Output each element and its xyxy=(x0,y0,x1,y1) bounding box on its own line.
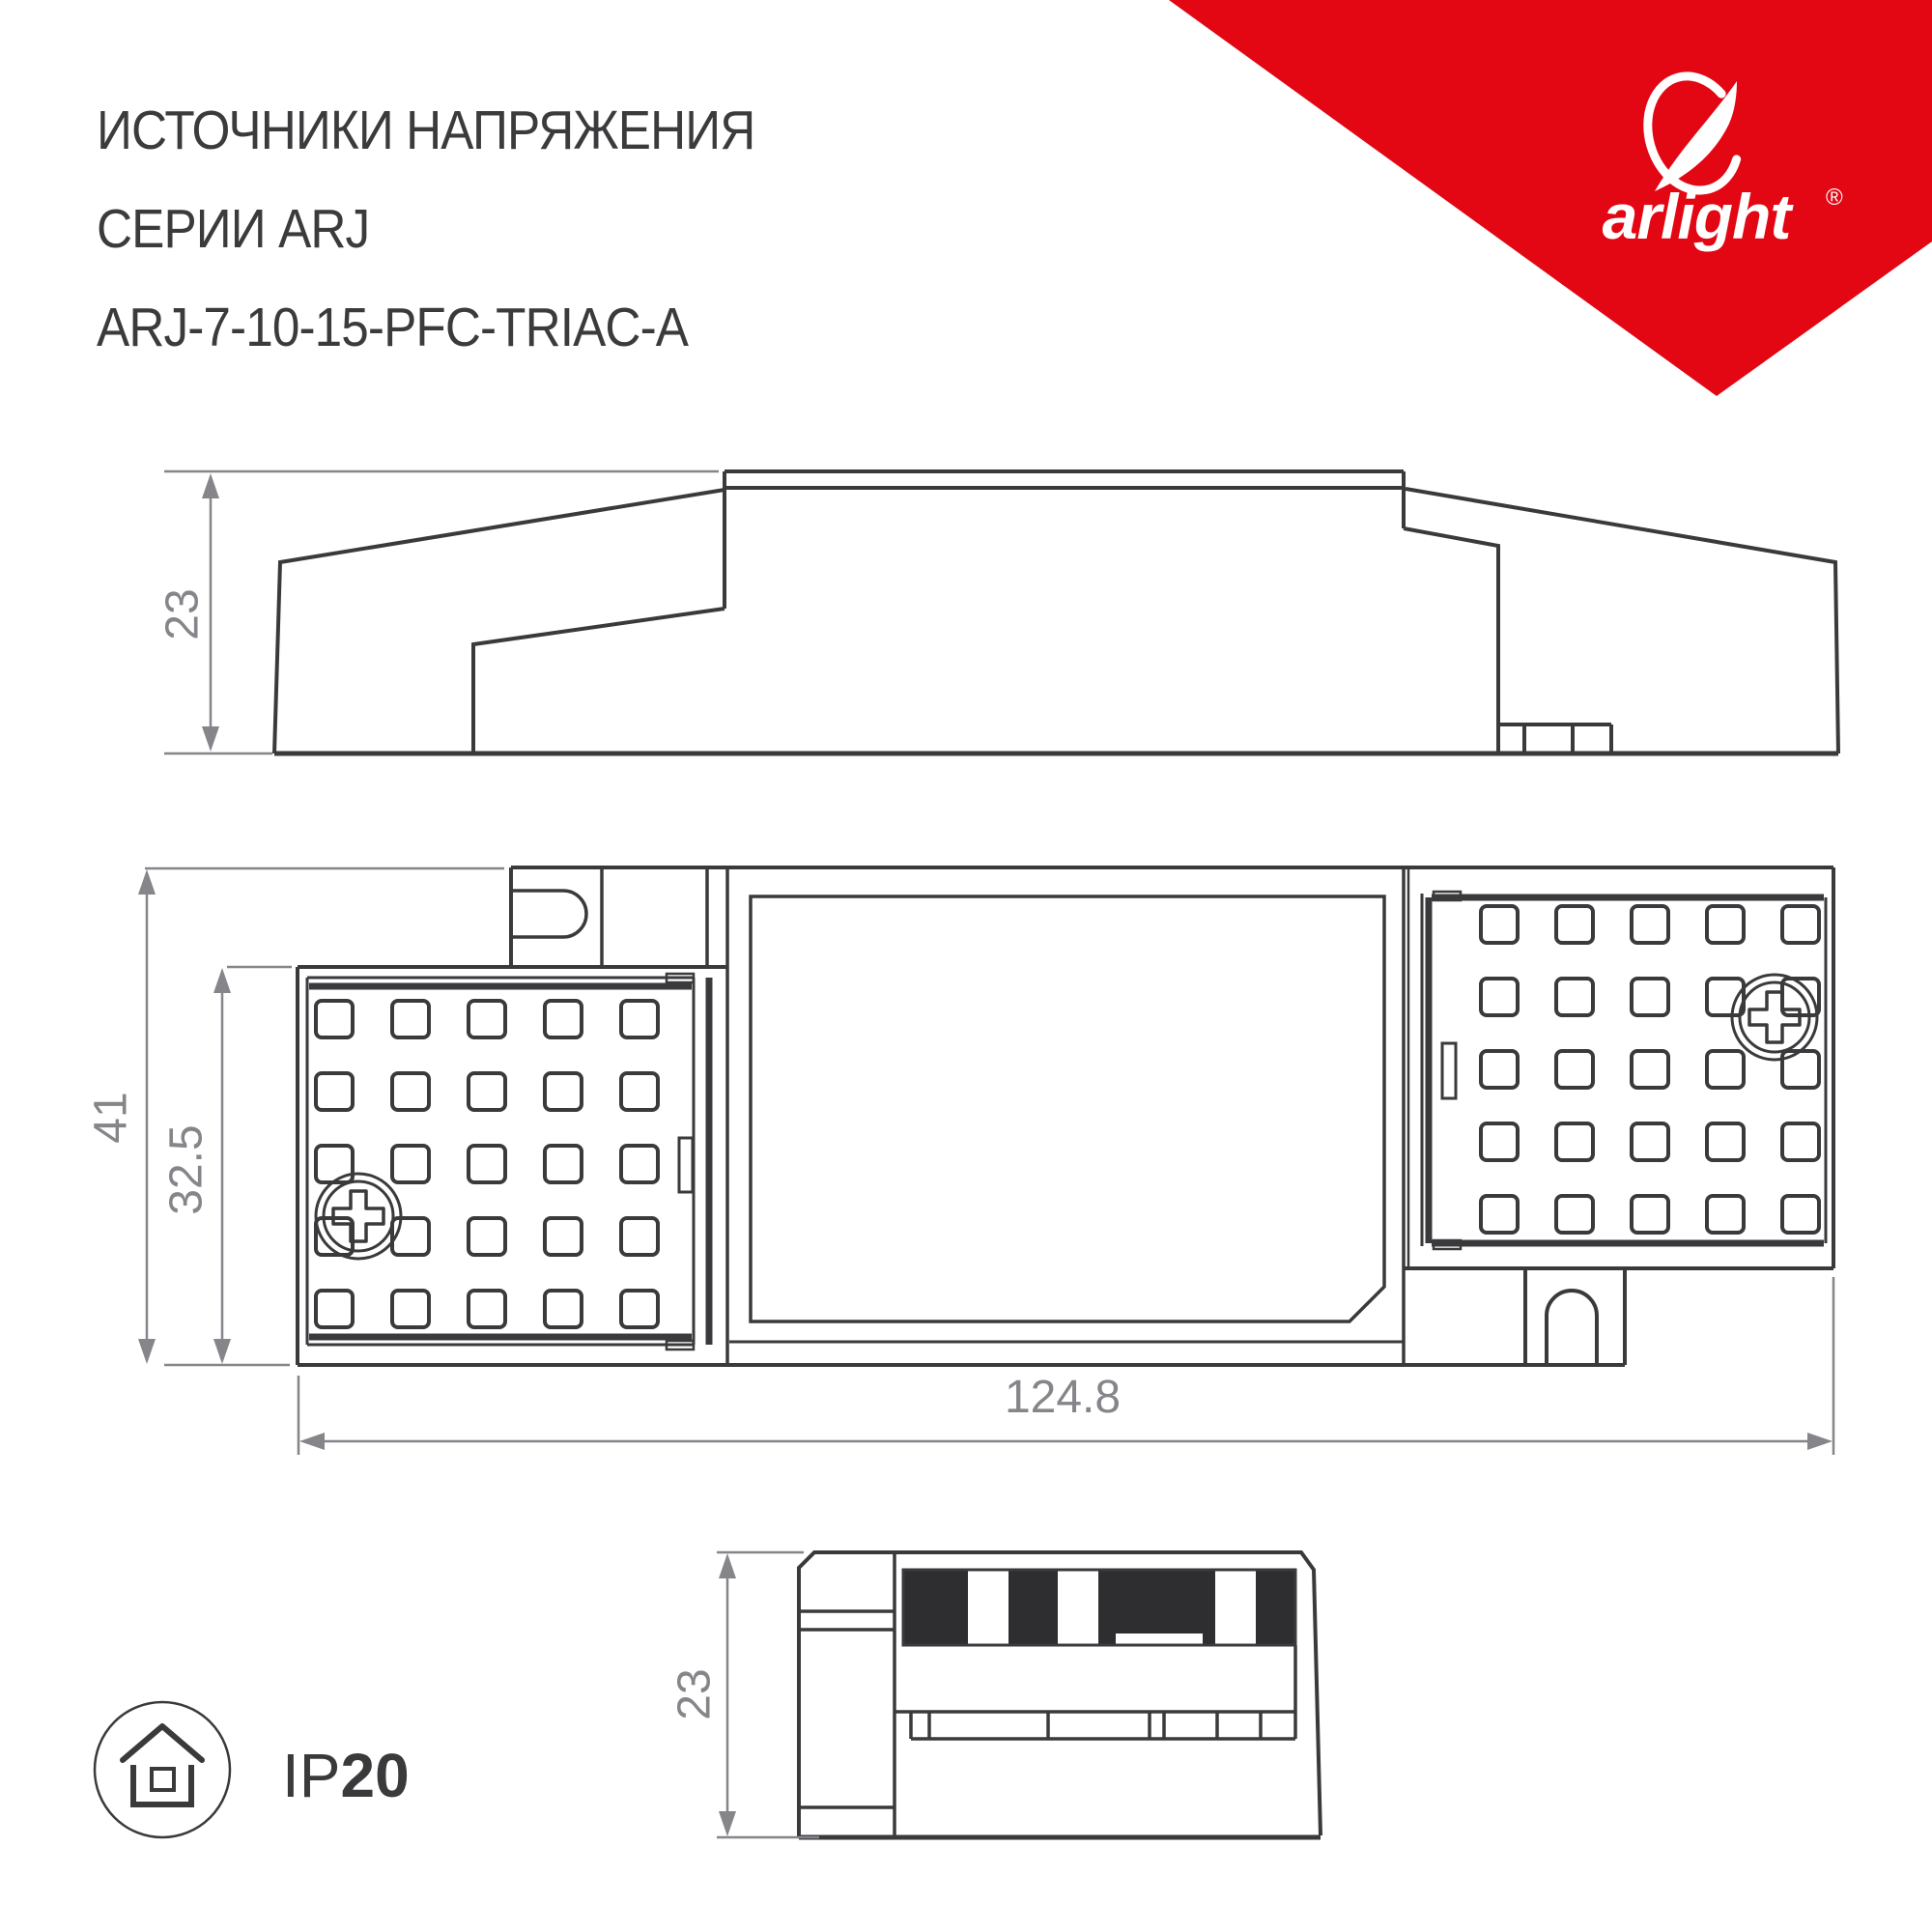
dimension-plan-height: 41 xyxy=(86,868,504,1365)
center-recess xyxy=(751,896,1384,1321)
ip-rating-badge: IP20 xyxy=(95,1702,410,1837)
dimension-end-height: 23 xyxy=(669,1552,819,1837)
ip-rating-label: IP20 xyxy=(282,1741,410,1810)
plan-length-label: 124.8 xyxy=(1005,1372,1121,1423)
arlight-logo-text: arlight xyxy=(1603,181,1795,252)
dimension-plan-inner-height: 32.5 xyxy=(161,967,292,1364)
brand-banner: arlight ® xyxy=(1169,0,1932,396)
vent-grille-left xyxy=(316,1001,658,1327)
plan-height-label: 41 xyxy=(86,1092,137,1143)
red-triangle xyxy=(1169,0,1932,396)
terminal-blocks-side xyxy=(1498,724,1611,753)
registered-mark: ® xyxy=(1826,185,1843,211)
side-view: 23 xyxy=(157,471,1838,753)
dimension-side-height: 23 xyxy=(157,471,719,753)
mounting-tab-top xyxy=(511,867,707,967)
end-view: 23 xyxy=(669,1552,1321,1837)
plan-inner-height-label: 32.5 xyxy=(161,1124,213,1214)
plan-view: 41 32.5 124.8 xyxy=(86,867,1833,1455)
latch-right xyxy=(1442,1043,1456,1098)
mounting-tab-bottom xyxy=(1525,1268,1625,1365)
house-in-circle-icon xyxy=(95,1702,230,1837)
terminal-strip xyxy=(903,1570,1295,1645)
end-height-label: 23 xyxy=(669,1668,721,1719)
vent-grille-right xyxy=(1481,906,1819,1233)
side-height-label: 23 xyxy=(157,588,209,639)
datasheet-page: ИСТОЧНИКИ НАПРЯЖЕНИЯ СЕРИИ ARJ ARJ-7-10-… xyxy=(0,0,1932,1932)
latch-left xyxy=(679,1138,693,1192)
terminal-screw-row xyxy=(895,1645,1295,1739)
right-grille-box xyxy=(1404,867,1833,1268)
drawing-canvas: arlight ® xyxy=(0,0,1932,1932)
